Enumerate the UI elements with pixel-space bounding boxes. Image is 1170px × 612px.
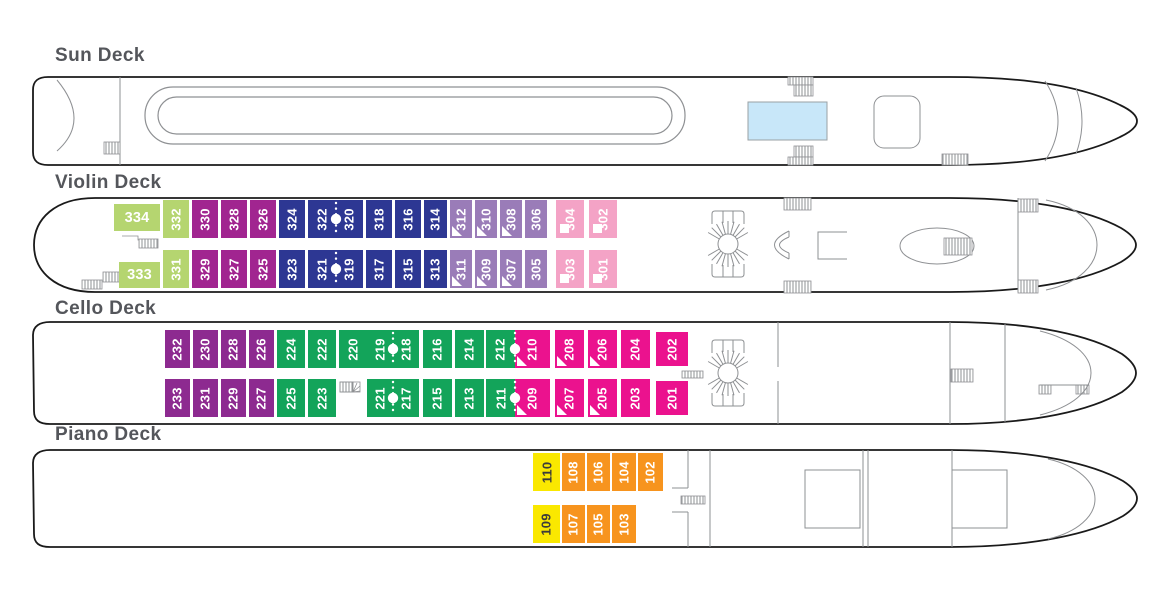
deck-plan-stage: 3343323303283263243223203183163143123103… (0, 0, 1170, 612)
cabin-number: 320 (342, 208, 357, 230)
cabin-110: 110 (533, 453, 560, 491)
cabin-104: 104 (612, 453, 636, 491)
cabin-number: 331 (168, 258, 183, 280)
cabin-332: 332 (163, 200, 189, 238)
cabin-221: 221 (367, 379, 393, 417)
cabin-327: 327 (221, 250, 247, 288)
cabin-number: 216 (430, 338, 445, 360)
cabin-314: 314 (424, 200, 447, 238)
cabin-number: 325 (255, 258, 270, 280)
cabin-number: 225 (283, 387, 298, 409)
deck-title-cello: Cello Deck (55, 298, 156, 320)
cabin-317: 317 (366, 250, 392, 288)
cabin-224: 224 (277, 330, 305, 368)
cabin-107: 107 (562, 505, 585, 543)
cabin-203: 203 (621, 379, 650, 417)
cabin-number: 233 (170, 387, 185, 409)
deck-title-sun: Sun Deck (55, 45, 145, 67)
cabin-number: 323 (284, 258, 299, 280)
cabin-number: 220 (345, 338, 360, 360)
cabin-number: 307 (504, 258, 519, 280)
cabin-number: 229 (226, 387, 241, 409)
cabin-307: 307 (500, 250, 522, 288)
cabin-number: 104 (616, 461, 631, 483)
cabin-number: 209 (525, 387, 540, 409)
cabin-number: 217 (398, 387, 413, 409)
cabin-309: 309 (475, 250, 497, 288)
cabin-number: 334 (125, 210, 150, 226)
cabin-number: 324 (284, 208, 299, 230)
cabin-number: 315 (400, 258, 415, 280)
cabin-number: 102 (643, 461, 658, 483)
cabin-number: 206 (595, 338, 610, 360)
cabin-number: 308 (504, 208, 519, 230)
cabin-number: 318 (371, 208, 386, 230)
cabin-225: 225 (277, 379, 305, 417)
deck-title-piano: Piano Deck (55, 424, 161, 446)
cabin-206: 206 (588, 330, 617, 368)
cabin-number: 329 (197, 258, 212, 280)
cabin-number: 227 (254, 387, 269, 409)
cabin-102: 102 (638, 453, 663, 491)
cabin-321: 321 (308, 250, 336, 288)
cabin-number: 201 (664, 387, 679, 409)
square-icon (593, 224, 602, 233)
cabin-number: 226 (254, 338, 269, 360)
cabin-316: 316 (395, 200, 421, 238)
cabin-number: 213 (462, 387, 477, 409)
cabin-number: 327 (226, 258, 241, 280)
cabin-212: 212 (486, 330, 515, 368)
cabin-308: 308 (500, 200, 522, 238)
cabin-213: 213 (455, 379, 484, 417)
cabin-number: 108 (566, 461, 581, 483)
cabin-227: 227 (249, 379, 274, 417)
cabin-108: 108 (562, 453, 585, 491)
cabin-number: 306 (529, 208, 544, 230)
cabin-202: 202 (656, 332, 688, 366)
cabin-number: 210 (525, 338, 540, 360)
cabin-number: 222 (314, 338, 329, 360)
cabin-232: 232 (165, 330, 190, 368)
cabin-233: 233 (165, 379, 190, 417)
cabin-number: 207 (562, 387, 577, 409)
cabin-number: 106 (591, 461, 606, 483)
cabin-319: 319 (336, 250, 363, 288)
cabin-number: 319 (342, 258, 357, 280)
cabin-229: 229 (221, 379, 246, 417)
cabin-number: 103 (616, 513, 631, 535)
cabin-331: 331 (163, 250, 189, 288)
cabin-305: 305 (525, 250, 547, 288)
cabin-326: 326 (250, 200, 276, 238)
cabin-number: 105 (591, 513, 606, 535)
cabin-number: 231 (198, 387, 213, 409)
cabin-number: 232 (170, 338, 185, 360)
cabin-222: 222 (308, 330, 336, 368)
cabin-number: 317 (371, 258, 386, 280)
cabin-315: 315 (395, 250, 421, 288)
cabin-325: 325 (250, 250, 276, 288)
cabin-number: 312 (454, 208, 469, 230)
cabin-number: 205 (595, 387, 610, 409)
cabin-328: 328 (221, 200, 247, 238)
cabin-number: 316 (400, 208, 415, 230)
cabin-number: 330 (197, 208, 212, 230)
cabin-209: 209 (515, 379, 550, 417)
cabin-214: 214 (455, 330, 484, 368)
cabin-231: 231 (193, 379, 218, 417)
cabin-313: 313 (424, 250, 447, 288)
cabin-number: 309 (479, 258, 494, 280)
cabin-210: 210 (515, 330, 550, 368)
cabin-226: 226 (249, 330, 274, 368)
cabin-310: 310 (475, 200, 497, 238)
cabin-320: 320 (336, 200, 363, 238)
cabin-number: 230 (198, 338, 213, 360)
cabin-number: 326 (255, 208, 270, 230)
cabin-number: 314 (428, 208, 443, 230)
cabin-number: 107 (566, 513, 581, 535)
cabin-number: 333 (127, 267, 152, 283)
cabin-number: 313 (428, 258, 443, 280)
square-icon (560, 274, 569, 283)
cabin-217: 217 (393, 379, 419, 417)
cabin-number: 221 (372, 387, 387, 409)
cabin-number: 322 (314, 208, 329, 230)
cabin-330: 330 (192, 200, 218, 238)
deck-title-violin: Violin Deck (55, 172, 161, 194)
cabin-number: 202 (664, 338, 679, 360)
cabin-106: 106 (587, 453, 610, 491)
cabin-109: 109 (533, 505, 560, 543)
cabin-223: 223 (308, 379, 336, 417)
cabin-204: 204 (621, 330, 650, 368)
cabin-number: 224 (283, 338, 298, 360)
cabin-323: 323 (279, 250, 305, 288)
cabin-number: 203 (628, 387, 643, 409)
cabin-number: 310 (479, 208, 494, 230)
cabin-number: 218 (398, 338, 413, 360)
cabin-302: 302 (589, 200, 617, 238)
cabin-number: 212 (493, 338, 508, 360)
cabin-301: 301 (589, 250, 617, 288)
cabin-215: 215 (423, 379, 452, 417)
cabin-211: 211 (486, 379, 515, 417)
cabin-218: 218 (393, 330, 419, 368)
cabin-322: 322 (308, 200, 336, 238)
cabin-number: 219 (372, 338, 387, 360)
cabin-228: 228 (221, 330, 246, 368)
cabin-201: 201 (656, 381, 688, 415)
cabin-311: 311 (450, 250, 472, 288)
cabin-304: 304 (556, 200, 584, 238)
cabin-306: 306 (525, 200, 547, 238)
cabin-205: 205 (588, 379, 617, 417)
cabin-329: 329 (192, 250, 218, 288)
cabin-number: 321 (314, 258, 329, 280)
cabin-number: 215 (430, 387, 445, 409)
cabin-number: 311 (453, 258, 468, 280)
cabin-220: 220 (339, 330, 367, 368)
square-icon (560, 224, 569, 233)
cabin-303: 303 (556, 250, 584, 288)
cabin-219: 219 (367, 330, 393, 368)
cabin-number: 109 (539, 513, 554, 535)
cabin-207: 207 (555, 379, 584, 417)
cabin-number: 223 (314, 387, 329, 409)
square-icon (593, 274, 602, 283)
cabin-number: 208 (562, 338, 577, 360)
cabin-230: 230 (193, 330, 218, 368)
cabin-number: 110 (539, 461, 554, 483)
cabin-318: 318 (366, 200, 392, 238)
cabin-103: 103 (612, 505, 636, 543)
cabin-number: 305 (529, 258, 544, 280)
cabin-number: 328 (226, 208, 241, 230)
cabin-number: 214 (462, 338, 477, 360)
cabin-number: 332 (168, 208, 183, 230)
cabin-208: 208 (555, 330, 584, 368)
cabins-layer: 3343323303283263243223203183163143123103… (0, 0, 1170, 612)
cabin-216: 216 (423, 330, 452, 368)
cabin-number: 204 (628, 338, 643, 360)
cabin-number: 228 (226, 338, 241, 360)
cabin-number: 211 (493, 387, 508, 409)
cabin-334: 334 (114, 204, 160, 231)
cabin-105: 105 (587, 505, 610, 543)
cabin-333: 333 (119, 262, 160, 288)
cabin-324: 324 (279, 200, 305, 238)
cabin-312: 312 (450, 200, 472, 238)
